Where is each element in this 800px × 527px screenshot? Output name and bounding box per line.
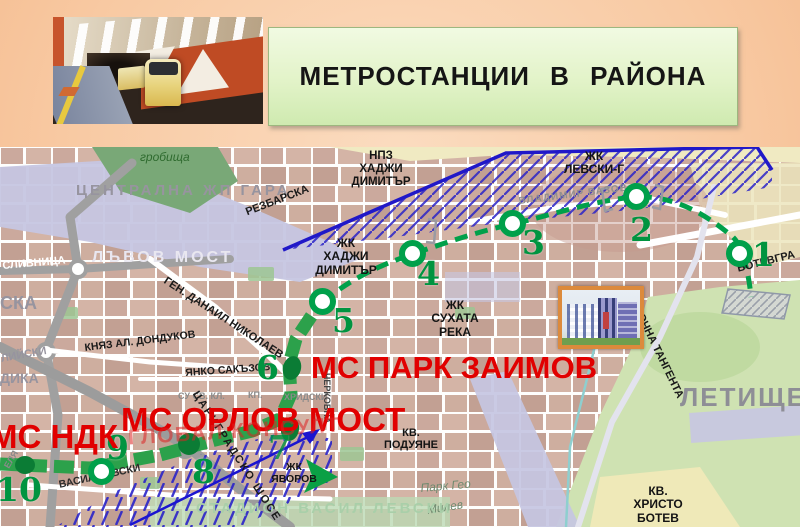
page-title: МЕТРОСТАНЦИИ В РАЙОНА: [300, 61, 707, 92]
metro-station-marker-1: [726, 240, 753, 267]
label-lavov-most: ЛЪВОВ МОСТ: [92, 249, 233, 267]
station-number-6: 6: [256, 351, 279, 384]
label-npz-hadzhi-dimitar: НПЗ ХАДЖИ ДИМИТЪР: [342, 150, 420, 189]
label-ms-ndk: МС НДК: [0, 418, 118, 456]
label-airport: ЛЕТИЩЕ: [680, 383, 800, 412]
station-number-1: 1: [752, 238, 775, 271]
label-central-station: ЦЕНТРАЛНА ЖП ГАРА: [76, 183, 290, 200]
label-zhk-suhata-reka: ЖК СУХАТА РЕКА: [418, 299, 492, 339]
photo-train-carriage: [118, 66, 145, 91]
presentation-slide: МЕТРОСТАНЦИИ В РАЙОНА: [0, 0, 800, 527]
label-zhk-levski: ЖК ЛЕВСКИ-Г: [552, 150, 636, 177]
building-greenery: [562, 338, 640, 345]
slide-header: МЕТРОСТАНЦИИ В РАЙОНА: [0, 0, 800, 147]
label-kv-hristo-botev: КВ. ХРИСТО БОТЕВ: [618, 485, 698, 525]
building-block: [618, 302, 637, 338]
photo-train-windshield: [149, 62, 178, 75]
station-number-8: 8: [192, 455, 215, 488]
station-number-5: 5: [332, 304, 355, 337]
city-map: гробища ЦЕНТРАЛНА ЖП ГАРА ЛЪВОВ МОСТ СКА…: [0, 147, 800, 527]
building-accent: [603, 312, 609, 329]
metro-depot-area: [722, 289, 790, 319]
station-number-3: 3: [522, 226, 545, 259]
label-ms-park-zaimov: МС ПАРК ЗАИМОВ: [311, 350, 597, 386]
label-cemetery: гробища: [140, 151, 190, 164]
metro-station-marker-2: [623, 183, 650, 210]
building-block: [567, 304, 600, 338]
station-number-4: 4: [417, 257, 440, 290]
metro-station-photo: [53, 17, 263, 124]
label-dika-fragment: ДИКА: [0, 371, 39, 387]
label-stadium: СТАДИОН ВАСИЛ ЛЕВСКИ: [196, 501, 453, 518]
building-inset-image: [558, 286, 644, 349]
label-ska-fragment: СКА: [0, 293, 37, 313]
station-number-2: 2: [630, 213, 653, 246]
title-panel: МЕТРОСТАНЦИИ В РАЙОНА: [268, 27, 738, 126]
label-kp-fragment: КП.: [248, 390, 262, 400]
label-zhk-hadzhi-dimitar: ЖК ХАДЖИ ДИМИТЪР: [306, 237, 386, 277]
station-number-10: 10: [0, 473, 42, 506]
